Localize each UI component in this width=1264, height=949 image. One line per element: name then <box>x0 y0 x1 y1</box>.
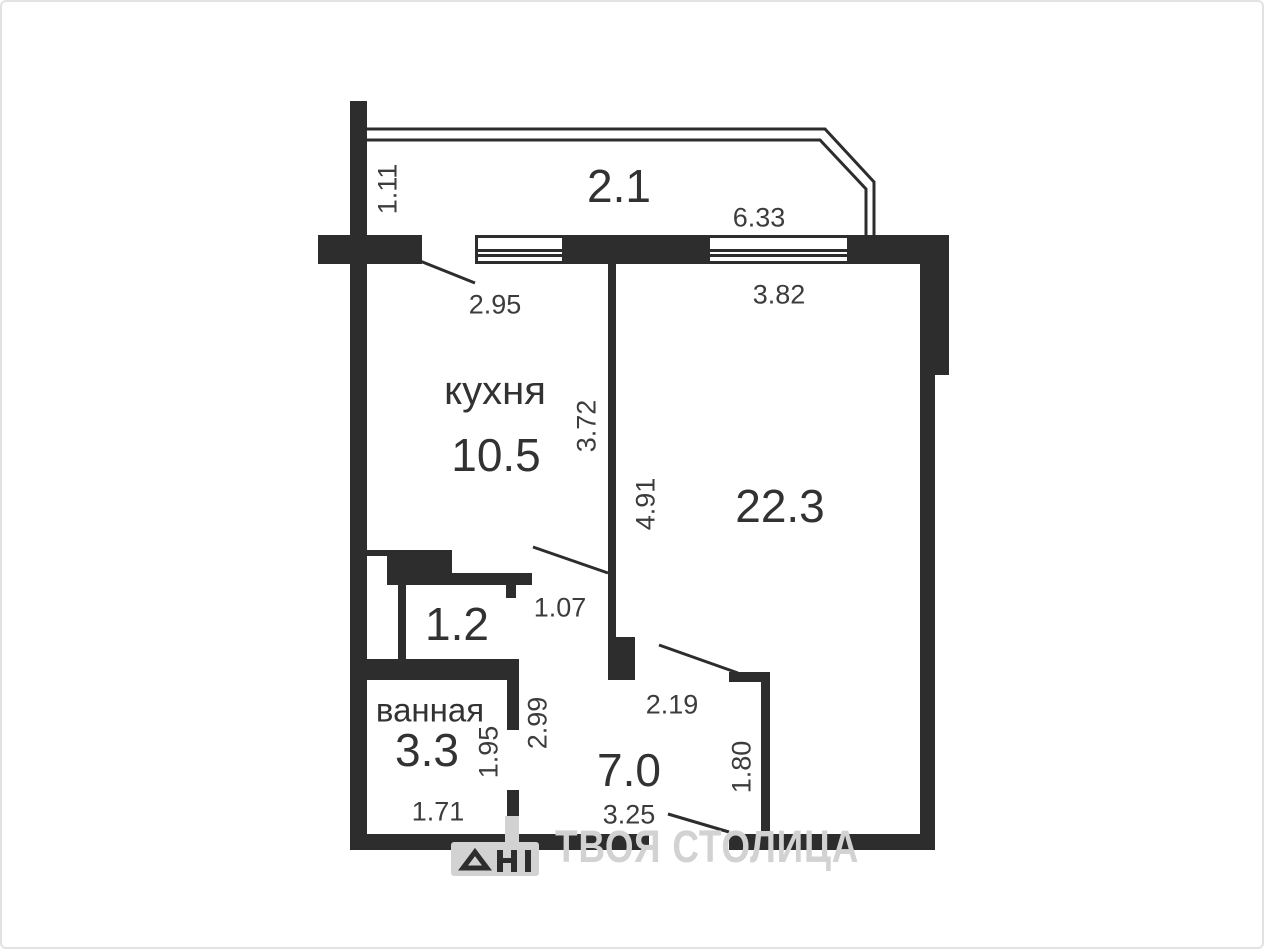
dim-kitchen-door: 1.07 <box>534 595 587 622</box>
wall-right-lower <box>920 375 935 850</box>
dim-kitchen-depth: 3.72 <box>574 400 601 453</box>
dim-kitchen-top: 2.95 <box>469 292 522 319</box>
living-room-door-swing <box>659 645 738 673</box>
kitchen-name-label: кухня <box>444 371 546 411</box>
watermark: ТВОЯ СТОЛИЦА <box>449 816 926 878</box>
dim-balcony-depth: 1.11 <box>375 164 402 215</box>
balcony-area-label: 2.1 <box>587 163 651 209</box>
watermark-text: ТВОЯ СТОЛИЦА <box>555 821 859 873</box>
living-room-window <box>707 235 850 264</box>
wall-kitchen-bottom-ledge <box>447 573 532 585</box>
wall-left <box>350 101 367 850</box>
hallway-area-label: 7.0 <box>597 747 661 793</box>
floor-plan: 2.1 кухня 10.5 22.3 1.2 ванная 3.3 7.0 1… <box>0 0 1264 949</box>
wall-closet-door-jamb <box>506 585 516 598</box>
dim-hallway-right: 1.80 <box>729 741 756 794</box>
wall-top-pier <box>318 235 422 264</box>
kitchen-door-swing <box>533 547 608 573</box>
dim-bathroom-depth: 1.95 <box>476 726 503 779</box>
kitchen-window <box>475 235 565 264</box>
wall-partition-door-jamb <box>608 637 635 680</box>
window-pane-line <box>709 254 848 257</box>
dim-leader-line-kitchen-top <box>420 261 475 283</box>
dim-hallway-depth: 2.99 <box>525 697 552 750</box>
living-room-area-label: 22.3 <box>735 483 825 529</box>
wall-bathroom-top <box>365 659 519 680</box>
wall-closet-left <box>398 585 406 659</box>
bathroom-area-label: 3.3 <box>395 727 459 773</box>
dim-living-depth: 4.91 <box>633 478 660 531</box>
watermark-logo-icon <box>449 816 541 878</box>
wall-right-upper <box>920 235 949 375</box>
bathroom-name-label: ванная <box>376 694 484 727</box>
window-pane-line <box>477 254 563 257</box>
wall-kitchen-bottom <box>387 556 452 585</box>
window-pane-line <box>709 249 848 252</box>
wall-bathroom-right-upper <box>507 680 519 730</box>
dim-balcony-window: 6.33 <box>733 205 786 232</box>
wall-top-middle <box>565 235 707 264</box>
dim-hallway-top: 2.19 <box>646 692 699 719</box>
closet-area-label: 1.2 <box>425 601 489 647</box>
wall-kitchen-living-partition <box>608 264 616 637</box>
dim-living-width: 3.82 <box>753 282 806 309</box>
kitchen-area-label: 10.5 <box>451 432 541 478</box>
window-pane-line <box>477 249 563 252</box>
